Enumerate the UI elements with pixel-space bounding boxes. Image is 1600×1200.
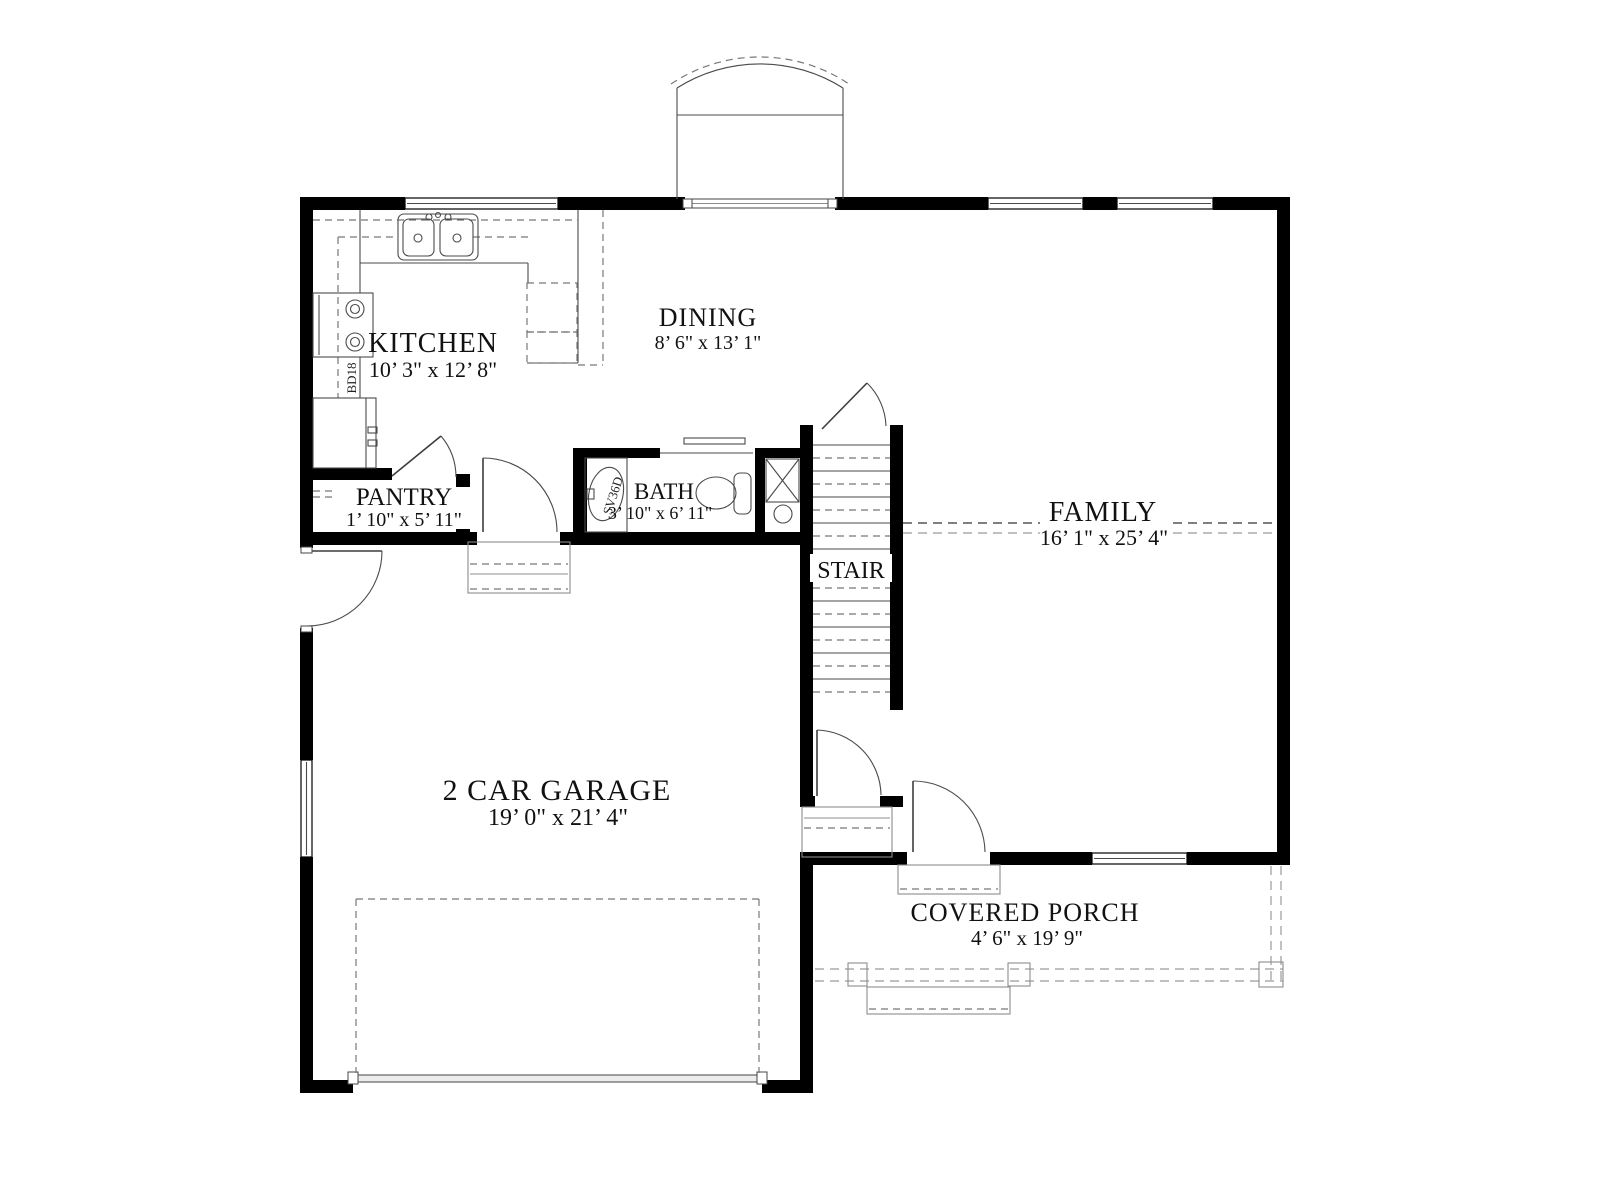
family-south-window — [1092, 853, 1187, 864]
bay-roof-dashed-line — [671, 57, 849, 84]
stair-door — [822, 383, 886, 429]
garage-door — [348, 899, 767, 1084]
garage-dims: 19’ 0" x 21’ 4" — [488, 805, 628, 831]
garage-label: 2 CAR GARAGE — [443, 774, 672, 807]
garage-hall-door — [483, 458, 557, 532]
bath-dims: 3’ 10" x 6’ 11" — [608, 503, 712, 523]
bath-label: BATH — [634, 479, 694, 504]
mechanical-closet — [766, 459, 799, 523]
stair-label: STAIR — [817, 558, 884, 584]
refrigerator — [313, 398, 377, 468]
family-north-window — [1117, 198, 1213, 209]
garage-window — [301, 760, 312, 857]
porch-post — [848, 963, 867, 986]
pantry-dims: 1’ 10" x 5’ 11" — [346, 509, 462, 531]
water-heater — [774, 505, 792, 523]
kitchen-dims: 10’ 3" x 12’ 8" — [369, 357, 497, 382]
porch-dims: 4’ 6" x 19’ 9" — [971, 926, 1083, 950]
garage-mudroom-door — [817, 730, 881, 796]
family-label: FAMILY — [1049, 497, 1157, 528]
front-door — [913, 781, 985, 852]
porch-post — [1008, 963, 1030, 986]
floor-plan-canvas: KITCHEN 10’ 3" x 12’ 8" DINING 8’ 6" x 1… — [0, 0, 1600, 1200]
dining-label: DINING — [659, 303, 757, 332]
kitchen-label: KITCHEN — [368, 328, 498, 359]
kitchen-sink-window — [405, 198, 558, 209]
interior-walls — [300, 425, 903, 807]
dining-dims: 8’ 6" x 13’ 1" — [655, 332, 762, 354]
mudroom-landing-steps — [802, 807, 892, 857]
porch-label: COVERED PORCH — [911, 898, 1140, 927]
front-door-stoop — [898, 865, 1000, 894]
floor-plan-drawing: KITCHEN 10’ 3" x 12’ 8" DINING 8’ 6" x 1… — [0, 0, 1600, 1200]
bay-window — [671, 57, 849, 208]
dishwasher — [527, 283, 577, 332]
porch-step — [867, 987, 1010, 1014]
garage-side-door — [301, 547, 382, 632]
family-dims: 16’ 1" x 25’ 4" — [1040, 525, 1168, 550]
bath-opening — [660, 438, 753, 453]
pantry-label: PANTRY — [356, 484, 452, 511]
cabinet-label: BD18 — [344, 362, 359, 393]
range-stove — [313, 293, 373, 357]
garage-entry-steps — [468, 542, 570, 593]
pantry-door — [392, 436, 456, 477]
dining-window — [988, 198, 1083, 209]
garage-door-open-outline — [356, 899, 759, 1073]
